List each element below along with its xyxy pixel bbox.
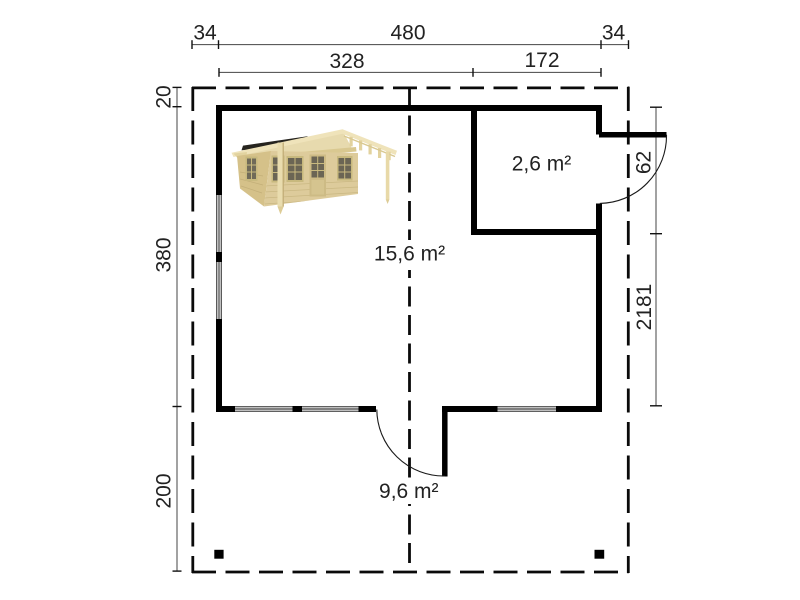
svg-text:62: 62 <box>633 151 656 174</box>
svg-text:328: 328 <box>329 50 364 73</box>
svg-text:200: 200 <box>153 473 176 508</box>
svg-text:20: 20 <box>153 85 176 108</box>
svg-text:172: 172 <box>524 49 559 72</box>
svg-text:380: 380 <box>153 237 176 272</box>
svg-text:34: 34 <box>193 22 217 45</box>
svg-text:9,6 m²: 9,6 m² <box>379 480 439 503</box>
svg-text:2181: 2181 <box>633 284 656 331</box>
svg-text:2,6 m²: 2,6 m² <box>512 153 572 176</box>
svg-text:34: 34 <box>602 22 626 45</box>
svg-text:15,6 m²: 15,6 m² <box>374 243 445 266</box>
svg-text:480: 480 <box>390 22 425 45</box>
